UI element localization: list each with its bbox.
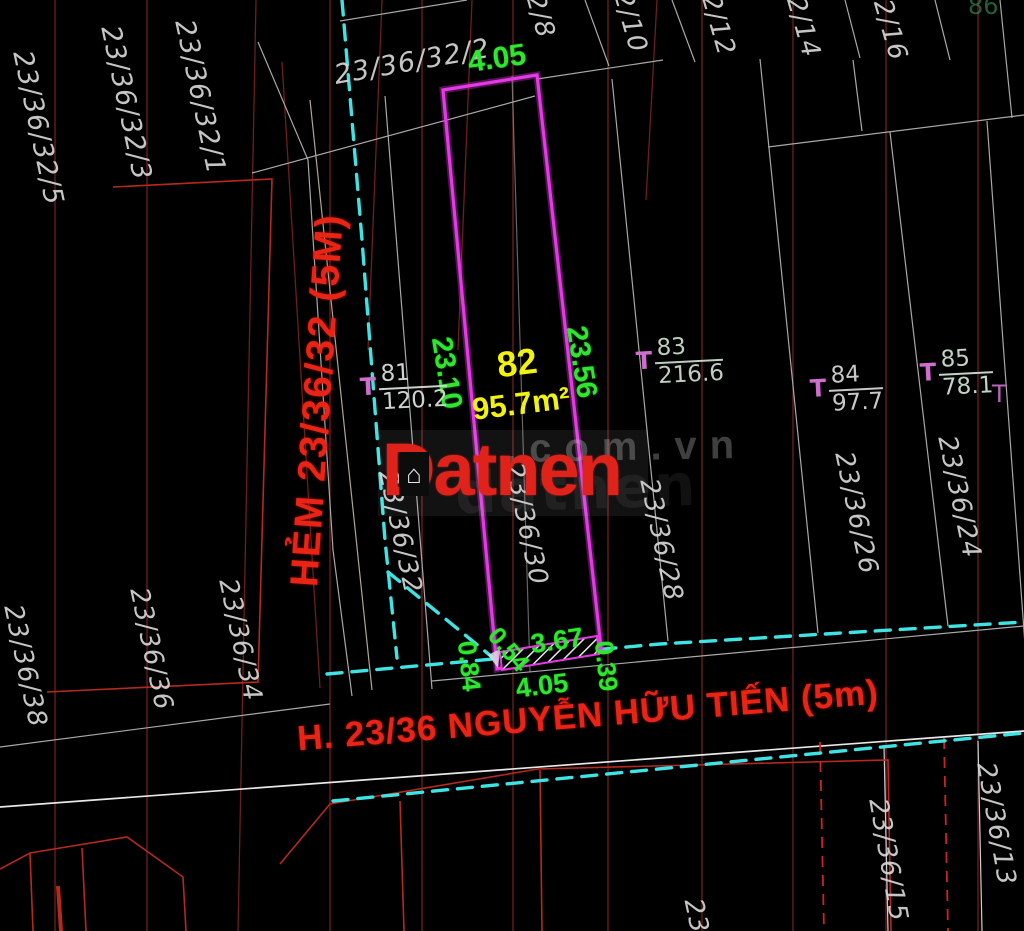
dimension-label: 3.67 bbox=[529, 622, 585, 660]
survey-parcel-number: 85 bbox=[938, 346, 993, 376]
parcel-label: 23/36/32/3 bbox=[94, 23, 157, 184]
dimension-label: 0.39 bbox=[588, 639, 624, 693]
parcel-label: 23/36/26 bbox=[828, 449, 883, 577]
parcel-label: 23/36/15 bbox=[862, 796, 913, 924]
parcel-label: 23/36/13 bbox=[970, 760, 1021, 888]
dimension-label: 0.84 bbox=[451, 639, 487, 693]
parcel-label: 23 bbox=[678, 896, 715, 931]
t-marker-icon: T bbox=[635, 346, 653, 375]
parcel-label: 2/8 bbox=[519, 0, 560, 42]
parcel-label: 23/36/36 bbox=[123, 585, 178, 713]
parcel-label: 2/10 bbox=[607, 0, 653, 56]
dimension-label: 0.54 bbox=[481, 622, 535, 678]
t-marker-icon: T bbox=[359, 372, 377, 401]
t-marker-icon: T bbox=[809, 374, 827, 403]
house-icon: ⌂ bbox=[399, 452, 429, 496]
survey-parcel-area: 216.6 bbox=[655, 361, 724, 389]
parcel-label: 23/36/32/1 bbox=[168, 17, 231, 178]
survey-mark-81: T81120.2 bbox=[359, 360, 449, 416]
t-marker-icon: T bbox=[919, 358, 937, 387]
edge-fragment-label: T bbox=[992, 380, 1007, 408]
edge-fragment-label: 86 bbox=[968, 0, 999, 20]
survey-mark-83: T83216.6 bbox=[635, 334, 725, 390]
survey-mark-84: T8497.7 bbox=[809, 362, 884, 418]
parcel-label: 23/36/34 bbox=[212, 576, 267, 704]
plot-number: 82 bbox=[495, 340, 540, 387]
parcel-label: 23/36/32/5 bbox=[6, 48, 69, 209]
survey-parcel-number: 84 bbox=[828, 362, 883, 392]
parcel-label: 2/12 bbox=[695, 0, 741, 59]
survey-parcel-area: 97.7 bbox=[829, 389, 883, 417]
parcel-label: 23/36/38 bbox=[0, 602, 53, 730]
survey-parcel-area: 120.2 bbox=[379, 387, 448, 415]
dimension-label: 4.05 bbox=[466, 38, 529, 80]
parcel-label: 23/36/24 bbox=[931, 433, 986, 561]
parcel-label: 2/16 bbox=[867, 0, 913, 64]
survey-mark-85: T8578.1 bbox=[919, 346, 994, 402]
parcel-label: 2/14 bbox=[780, 0, 826, 61]
survey-parcel-area: 78.1 bbox=[939, 373, 993, 401]
cadastral-map: 23/36/32/22/82/102/122/142/1623/36/32/52… bbox=[0, 0, 1024, 931]
